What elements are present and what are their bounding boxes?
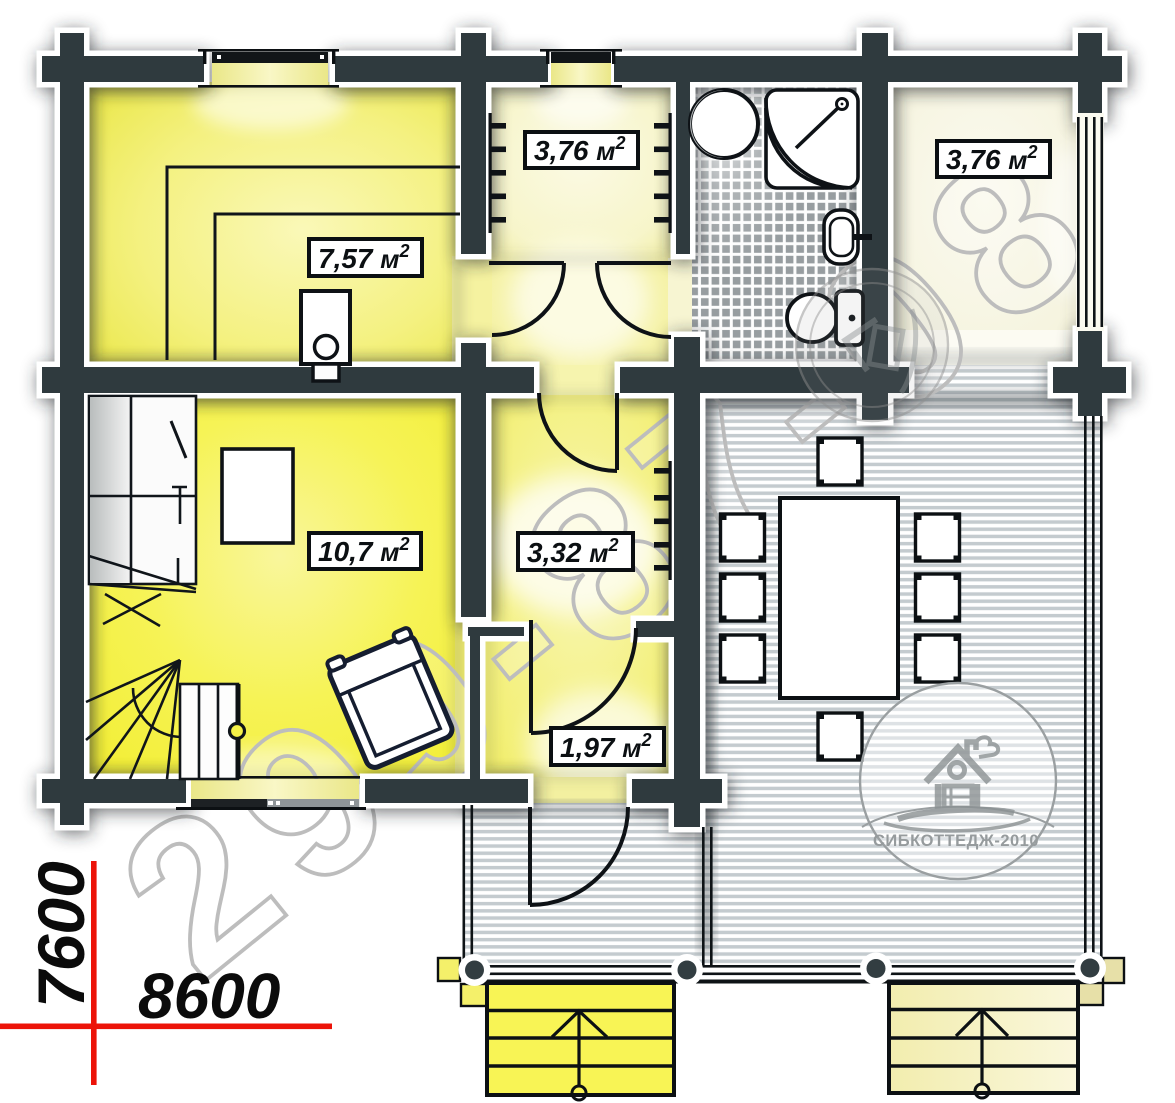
svg-text:3,32 м2: 3,32 м2: [527, 535, 619, 568]
svg-text:3,76 м2: 3,76 м2: [946, 142, 1038, 175]
svg-text:10,7 м2: 10,7 м2: [318, 534, 410, 567]
svg-text:1,97 м2: 1,97 м2: [560, 730, 652, 763]
svg-text:3,76 м2: 3,76 м2: [534, 133, 626, 166]
svg-text:7600: 7600: [24, 861, 98, 1008]
svg-text:7,57 м2: 7,57 м2: [318, 241, 410, 274]
svg-text:СИБКОТТЕДЖ-2010: СИБКОТТЕДЖ-2010: [873, 832, 1039, 850]
svg-text:8600: 8600: [138, 960, 280, 1032]
